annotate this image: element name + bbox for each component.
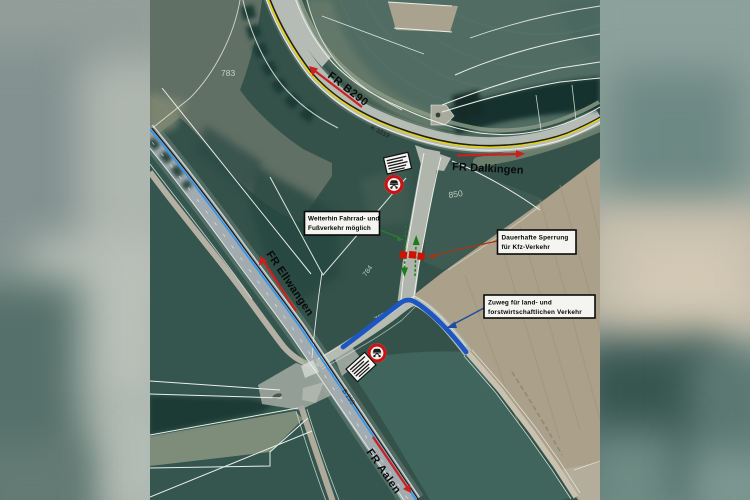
svg-text:für Kfz-Verkehr: für Kfz-Verkehr [502,244,551,251]
svg-text:850: 850 [448,188,464,200]
svg-text:forstwirtschaftlichen Verkehr: forstwirtschaftlichen Verkehr [488,309,582,316]
svg-text:Dauerhafte Sperrung: Dauerhafte Sperrung [502,235,569,242]
svg-text:783: 783 [221,68,235,78]
svg-text:Weiterhin Fahrrad- und: Weiterhin Fahrrad- und [308,216,379,223]
svg-text:Zuweg für land- und: Zuweg für land- und [488,300,552,307]
svg-text:Fußverkehr möglich: Fußverkehr möglich [308,225,371,232]
